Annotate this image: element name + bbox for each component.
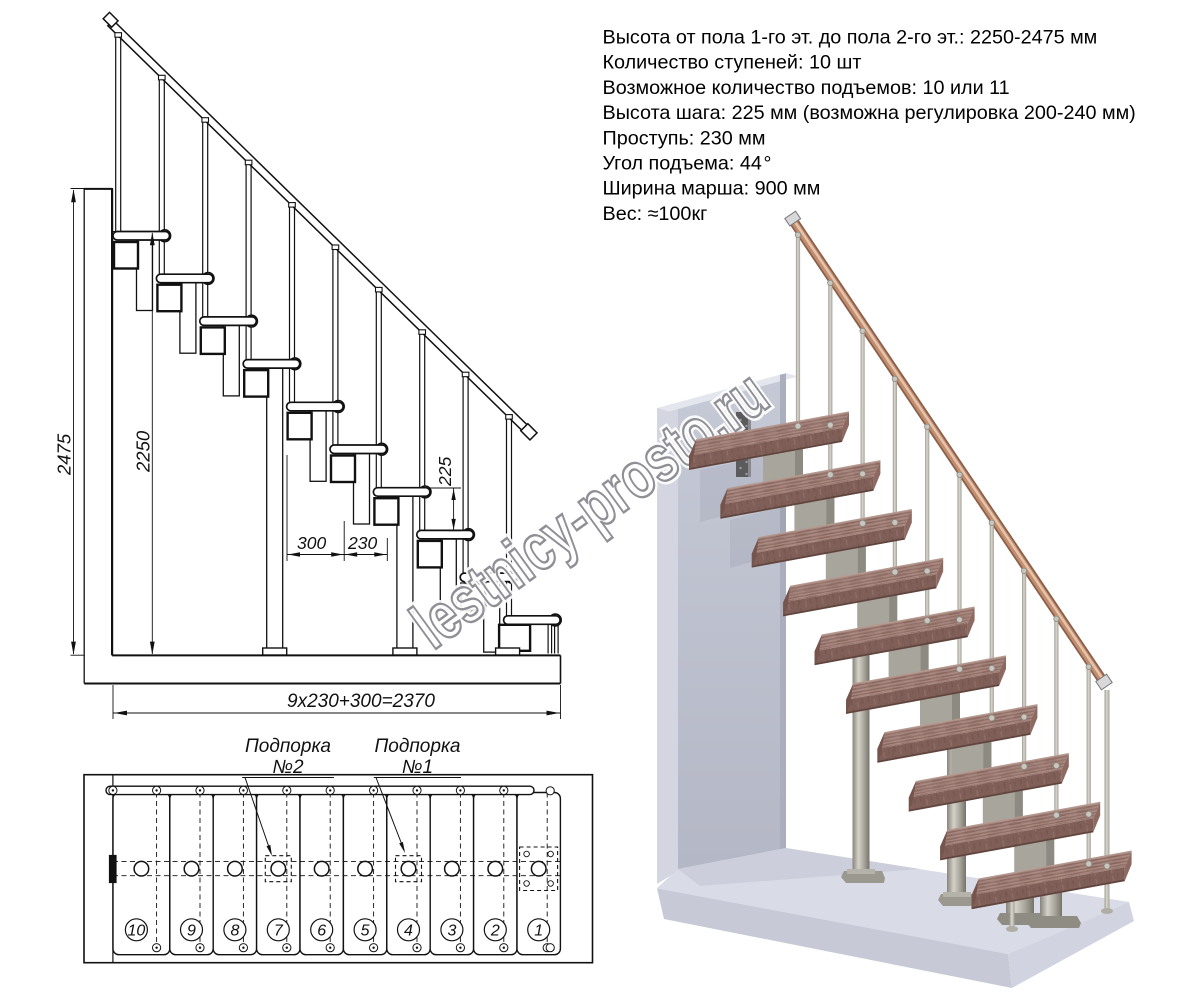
- svg-text:Вес: ≈100кг: Вес: ≈100кг: [603, 203, 708, 225]
- svg-text:Проступь: 230 мм: Проступь: 230 мм: [603, 127, 766, 149]
- svg-text:300: 300: [297, 533, 326, 553]
- svg-text:1: 1: [534, 923, 543, 940]
- svg-text:2475: 2475: [54, 433, 75, 476]
- svg-text:Количество ступеней: 10 шт: Количество ступеней: 10 шт: [603, 52, 862, 74]
- svg-text:9: 9: [187, 923, 196, 940]
- svg-text:3: 3: [447, 923, 456, 940]
- svg-text:8: 8: [230, 923, 239, 940]
- svg-text:Высота шага: 225 мм (возможна: Высота шага: 225 мм (возможна регулировк…: [603, 102, 1136, 124]
- svg-text:7: 7: [274, 923, 284, 940]
- svg-text:2: 2: [490, 923, 500, 940]
- svg-text:№1: №1: [402, 757, 433, 778]
- svg-text:Угол подъема: 44 °: Угол подъема: 44 °: [603, 153, 772, 175]
- svg-text:9x230+300=2370: 9x230+300=2370: [287, 691, 435, 712]
- svg-text:230: 230: [347, 533, 377, 553]
- svg-text:10: 10: [128, 923, 146, 940]
- svg-text:2250: 2250: [133, 430, 154, 473]
- svg-text:4: 4: [404, 923, 413, 940]
- svg-text:5: 5: [361, 923, 370, 940]
- svg-text:Подпорка: Подпорка: [375, 736, 461, 757]
- svg-text:Подпорка: Подпорка: [245, 736, 331, 757]
- svg-text:Возможное количество подъемов:: Возможное количество подъемов: 10 или 11: [603, 77, 1010, 99]
- svg-text:6: 6: [317, 923, 326, 940]
- svg-text:№2: №2: [272, 757, 304, 778]
- svg-text:Высота от пола 1-го эт. до пол: Высота от пола 1-го эт. до пола 2-го эт.…: [603, 27, 1098, 49]
- svg-text:Ширина марша: 900 мм: Ширина марша: 900 мм: [603, 178, 821, 200]
- svg-text:225: 225: [435, 457, 455, 487]
